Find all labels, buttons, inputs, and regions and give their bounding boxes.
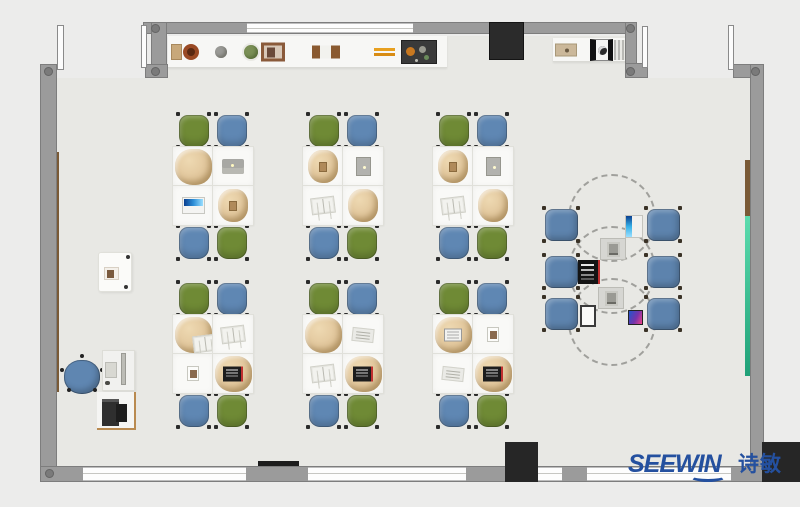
student-chair-blue	[347, 283, 377, 315]
desk-cluster-row1-col3	[433, 115, 513, 260]
tablet	[356, 157, 371, 176]
discussion-chair-blue	[647, 209, 680, 241]
wall-joint	[626, 24, 635, 33]
laptop	[353, 366, 373, 381]
student-chair-blue	[179, 227, 209, 259]
storage-shelf-right	[553, 38, 628, 62]
mouse	[105, 381, 110, 385]
wall-display-screen	[489, 22, 524, 60]
worksheet	[351, 326, 374, 342]
shelf-item-pencils	[374, 48, 395, 56]
schoolbag	[305, 317, 342, 353]
shelf-item-frame	[261, 42, 285, 61]
laptop	[222, 159, 244, 174]
floor-plan-canvas: SEEWIN 诗敏	[0, 0, 800, 507]
student-desk	[433, 186, 473, 225]
desk-cluster-row1-col2	[303, 115, 383, 260]
student-desk	[343, 186, 383, 225]
schoolbag	[478, 189, 508, 222]
office-chair	[64, 360, 100, 394]
door-leaf-left-outer	[57, 25, 64, 70]
pencil-case	[229, 201, 237, 211]
device-monitor-blue	[625, 215, 643, 238]
wall-joint	[44, 67, 53, 76]
wall-bottom-window-3	[538, 467, 562, 481]
student-chair-blue	[347, 115, 377, 147]
desk-group	[433, 147, 513, 227]
student-desk	[173, 354, 213, 393]
laptop	[182, 197, 205, 214]
student-desk	[213, 315, 253, 354]
device-laptop-black	[578, 260, 600, 284]
discussion-chair-blue	[545, 256, 578, 288]
laptop	[444, 328, 462, 341]
discussion-chair-blue	[647, 256, 680, 288]
cabinet-knob	[124, 285, 128, 289]
photo-card	[187, 366, 199, 381]
schoolbag	[348, 189, 378, 222]
device-laptop-white	[580, 305, 596, 327]
wall-left	[40, 64, 57, 482]
shelf-item-tan-device	[555, 43, 577, 56]
wall-bottom-window-1	[83, 467, 246, 481]
shelf-item-box-row	[312, 45, 340, 58]
student-desk	[343, 354, 383, 393]
open-book	[310, 196, 336, 216]
discussion-chair-blue	[545, 209, 578, 241]
student-chair-blue	[309, 395, 339, 427]
pencil-case	[449, 162, 457, 172]
desk-cluster-row2-col2	[303, 283, 383, 428]
student-desk	[433, 315, 473, 354]
desk-cluster-row2-col1	[173, 283, 253, 428]
document	[104, 267, 119, 280]
laptop	[223, 366, 243, 381]
student-chair-green	[347, 227, 377, 259]
student-desk	[173, 147, 213, 186]
student-desk	[433, 354, 473, 393]
student-desk	[173, 186, 213, 225]
student-desk	[343, 315, 383, 354]
discussion-chair-blue	[545, 298, 578, 330]
student-chair-green	[439, 115, 469, 147]
student-chair-green	[217, 227, 247, 259]
student-desk	[213, 147, 253, 186]
cabinet-knob	[126, 255, 130, 259]
student-desk	[473, 315, 513, 354]
student-desk	[473, 147, 513, 186]
shelf-item-camera	[590, 39, 613, 61]
door-leaf-left-inner	[141, 25, 147, 68]
desk-cluster-row1-col1	[173, 115, 253, 260]
device-reader	[600, 238, 626, 260]
student-chair-blue	[179, 395, 209, 427]
student-desk	[213, 354, 253, 393]
student-desk	[303, 147, 343, 186]
student-chair-green	[477, 227, 507, 259]
student-desk	[473, 186, 513, 225]
student-desk	[303, 186, 343, 225]
shelf-item-sphere	[215, 46, 227, 58]
monitor	[121, 353, 126, 385]
student-chair-green	[179, 283, 209, 315]
discussion-chair-blue	[647, 298, 680, 330]
brand-logo-cjk: 诗敏	[738, 453, 782, 477]
wall-joint	[751, 67, 760, 76]
pencil-case	[319, 162, 327, 172]
student-desk	[213, 186, 253, 225]
student-chair-blue	[439, 395, 469, 427]
wall-mounted-board	[258, 461, 299, 466]
student-chair-blue	[439, 227, 469, 259]
shelf-item-wood-box	[171, 44, 182, 60]
student-chair-green	[179, 115, 209, 147]
schoolbag	[175, 149, 212, 185]
door-leaf-right-outer	[728, 25, 734, 70]
student-desk	[173, 315, 213, 354]
wall-right	[750, 64, 764, 482]
desk-group	[173, 147, 253, 227]
student-desk	[433, 147, 473, 186]
student-chair-blue	[477, 283, 507, 315]
brand-logo: SEEWIN 诗敏	[628, 452, 798, 486]
brand-logo-swoosh	[690, 471, 726, 482]
wall-joint	[151, 67, 160, 76]
student-chair-green	[217, 395, 247, 427]
wall-top-window	[247, 23, 413, 33]
device-phone	[628, 310, 643, 325]
student-chair-blue	[309, 227, 339, 259]
student-chair-green	[309, 115, 339, 147]
worksheet	[441, 365, 464, 381]
desk-group	[433, 315, 513, 395]
student-desk	[303, 315, 343, 354]
printer	[102, 399, 119, 426]
desk-cluster-row2-col3	[433, 283, 513, 428]
device-reader	[598, 287, 624, 309]
student-chair-green	[309, 283, 339, 315]
open-book	[440, 196, 466, 216]
desk-group	[303, 147, 383, 227]
student-chair-green	[477, 395, 507, 427]
desk-group	[303, 315, 383, 395]
shelf-item-plant	[244, 45, 258, 59]
keyboard	[105, 362, 117, 378]
tablet	[486, 157, 501, 176]
open-book	[220, 325, 246, 345]
door-leaf-right-inner	[642, 26, 648, 68]
wall-joint	[626, 67, 635, 76]
shelf-item-pot	[183, 44, 199, 60]
student-chair-green	[439, 283, 469, 315]
column-bottom-center	[505, 442, 538, 482]
photo-card	[487, 327, 499, 342]
desk-group	[173, 315, 253, 395]
student-chair-blue	[217, 115, 247, 147]
open-book	[310, 364, 336, 384]
wall-bottom-window-2	[308, 467, 466, 481]
student-chair-blue	[477, 115, 507, 147]
shelf-item-tray	[401, 40, 437, 64]
student-desk	[303, 354, 343, 393]
student-desk	[343, 147, 383, 186]
student-chair-green	[347, 395, 377, 427]
laptop	[483, 366, 503, 381]
wall-joint	[45, 469, 54, 478]
student-chair-blue	[217, 283, 247, 315]
student-desk	[473, 354, 513, 393]
wall-joint	[151, 24, 160, 33]
storage-shelf-left	[168, 36, 447, 68]
